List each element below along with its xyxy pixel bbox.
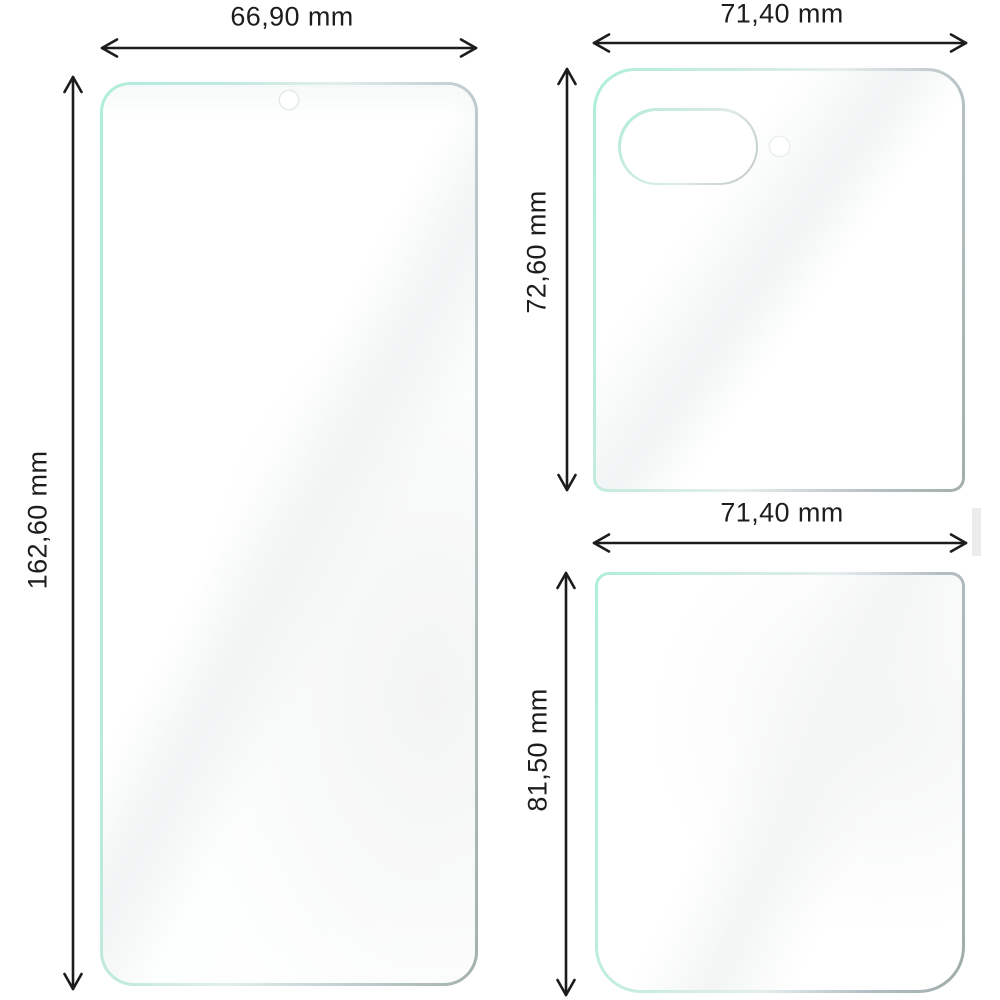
front-film-shape — [100, 82, 478, 986]
cover-height-dimension-arrow — [559, 69, 576, 490]
cover-film-shape — [593, 68, 965, 492]
front-width-dimension-arrow — [102, 40, 476, 57]
back-film-shape — [595, 572, 965, 993]
front-height-dimension-arrow — [65, 77, 82, 989]
camera-hole-cutout — [770, 137, 789, 156]
front-film-surface — [103, 85, 475, 983]
front-height-label: 162,60 mm — [23, 451, 54, 590]
back-width-dimension-arrow — [594, 535, 966, 552]
punch-hole-camera-cutout — [280, 91, 298, 109]
back-width-label: 71,40 mm — [720, 498, 843, 529]
cover-width-label: 71,40 mm — [720, 0, 843, 30]
back-height-dimension-arrow — [558, 573, 575, 995]
image-edge-artifact — [972, 508, 981, 556]
cover-height-label: 72,60 mm — [522, 190, 553, 313]
camera-pill-cutout — [618, 108, 758, 185]
dimension-diagram: 66,90 mm 162,60 mm 71,40 mm 72,60 mm 71,… — [0, 0, 1000, 1000]
front-width-label: 66,90 mm — [230, 2, 353, 33]
back-height-label: 81,50 mm — [523, 688, 554, 811]
camera-pill-cutout-inner — [621, 111, 756, 183]
cover-width-dimension-arrow — [594, 35, 966, 52]
cover-film-surface — [596, 71, 962, 489]
back-film-surface — [598, 575, 962, 990]
